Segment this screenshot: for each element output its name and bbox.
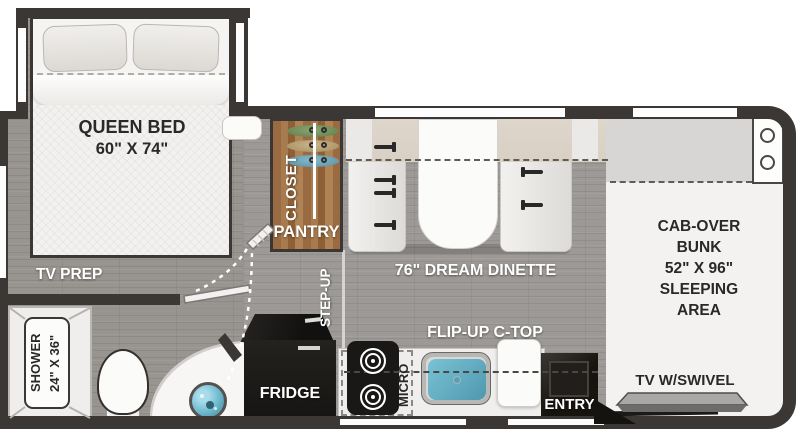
burner-icon: [360, 384, 386, 410]
hanger-hook-icon: [321, 157, 327, 163]
sink-sparkle: [214, 407, 217, 410]
closet-pantry: CLOSET PANTRY: [270, 118, 343, 252]
queen-bed-label: QUEEN BED 60" X 74": [40, 116, 224, 160]
seatbelt-icon: [523, 170, 543, 174]
step-up-label: STEP-UP: [318, 258, 336, 338]
kitchen-sink-basin: [428, 359, 486, 400]
dinette-bench-endcap: [572, 119, 598, 161]
tv-swivel-label: TV W/SWIVEL: [625, 372, 745, 389]
dinette-bench-endcap: [346, 119, 372, 161]
bunk-label-line3: 52" X 96": [620, 258, 778, 279]
wall-corner-top-right: [713, 106, 796, 190]
window-bedroom-left: [18, 28, 26, 102]
window-bottom-1: [340, 419, 466, 425]
fridge-label: FRIDGE: [246, 385, 334, 403]
toilet-icon: [97, 349, 149, 415]
cabinet: [222, 116, 262, 140]
flip-up-counter: [497, 339, 541, 407]
dinette-label: 76" DREAM DINETTE: [368, 262, 583, 280]
pillow: [42, 24, 128, 73]
closet-rod: [313, 123, 316, 219]
wall-right: [783, 180, 796, 360]
bunk-label-line4: SLEEPING: [620, 279, 778, 300]
seatbelt-cap: [392, 220, 396, 230]
window-top-2: [633, 108, 737, 117]
seatbelt-icon: [374, 145, 394, 149]
seatbelt-cap: [392, 142, 396, 152]
drain-icon: [206, 401, 214, 409]
bunk-label-line5: AREA: [620, 300, 778, 321]
window-left-lower: [0, 166, 6, 278]
seatbelt-icon: [523, 203, 543, 207]
sink-sparkle: [200, 394, 204, 398]
step-edge: [342, 250, 345, 348]
bunk-dash-line: [610, 181, 752, 183]
kitchen-sink-icon: [421, 352, 491, 405]
drain-icon: [453, 376, 461, 384]
micro-label: MICRO: [396, 352, 414, 418]
seatbelt-icon: [374, 191, 394, 195]
dinette-dash-line: [346, 159, 608, 161]
wall-bathroom: [6, 294, 180, 305]
wall-slide-top: [16, 8, 250, 18]
vanity-sink-icon: [189, 382, 227, 420]
bunk-label: CAB-OVER BUNK 52" X 96" SLEEPING AREA: [620, 216, 778, 321]
counter-dash-line: [344, 371, 598, 373]
seatbelt-icon: [374, 178, 394, 182]
seatbelt-cap: [392, 188, 396, 198]
fridge-handle: [298, 346, 320, 350]
dinette-table: [418, 119, 498, 249]
bunk-label-line1: CAB-OVER: [620, 216, 778, 237]
seatbelt-icon: [374, 223, 394, 227]
window-bedroom-right: [236, 23, 244, 102]
rv-floorplan: QUEEN BED 60" X 74" TV PREP CLOSET PANTR…: [0, 0, 800, 430]
seatbelt-cap: [521, 200, 525, 210]
pillow: [132, 24, 220, 73]
queen-bed-label-line1: QUEEN BED: [40, 116, 224, 138]
entry-step-inner: [549, 361, 589, 397]
seatbelt-cap: [392, 175, 396, 185]
window-entry-door: [508, 419, 604, 425]
hanger-hook-icon: [321, 142, 327, 148]
fridge-box: [244, 340, 336, 422]
shower-label: SHOWER 24" X 36": [27, 320, 67, 406]
tv-prep-label: TV PREP: [36, 266, 140, 284]
closet-label: CLOSET: [283, 151, 305, 225]
window-top-1: [375, 108, 565, 117]
shower-label-line1: SHOWER: [27, 320, 46, 406]
shower-label-line2: 24" X 36": [46, 320, 65, 406]
hanger-hook-icon: [321, 127, 327, 133]
bunk-label-line2: BUNK: [620, 237, 778, 258]
flip-up-label: FLIP-UP C-TOP: [420, 324, 550, 342]
pantry-label: PANTRY: [273, 223, 340, 242]
seatbelt-cap: [521, 167, 525, 177]
bed-sheet-fold: [33, 75, 229, 105]
queen-bed-label-line2: 60" X 74": [40, 138, 224, 160]
entry-label: ENTRY: [541, 396, 598, 413]
burner-icon: [360, 348, 386, 374]
